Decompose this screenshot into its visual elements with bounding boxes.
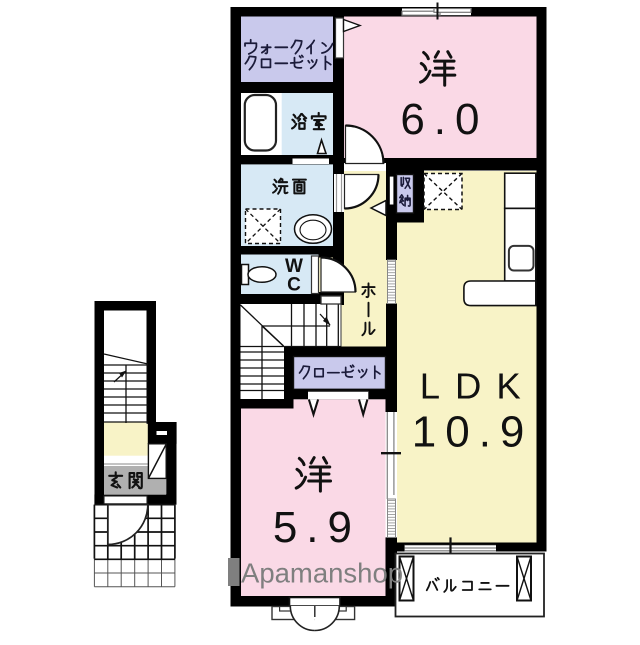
svg-text:5.9: 5.9	[273, 503, 361, 552]
svg-text:Apamanshop: Apamanshop	[241, 557, 403, 588]
svg-text:10.9: 10.9	[412, 407, 534, 456]
svg-text:C: C	[287, 275, 301, 296]
svg-text:LDK: LDK	[420, 365, 536, 406]
svg-text:6.0: 6.0	[400, 95, 488, 144]
